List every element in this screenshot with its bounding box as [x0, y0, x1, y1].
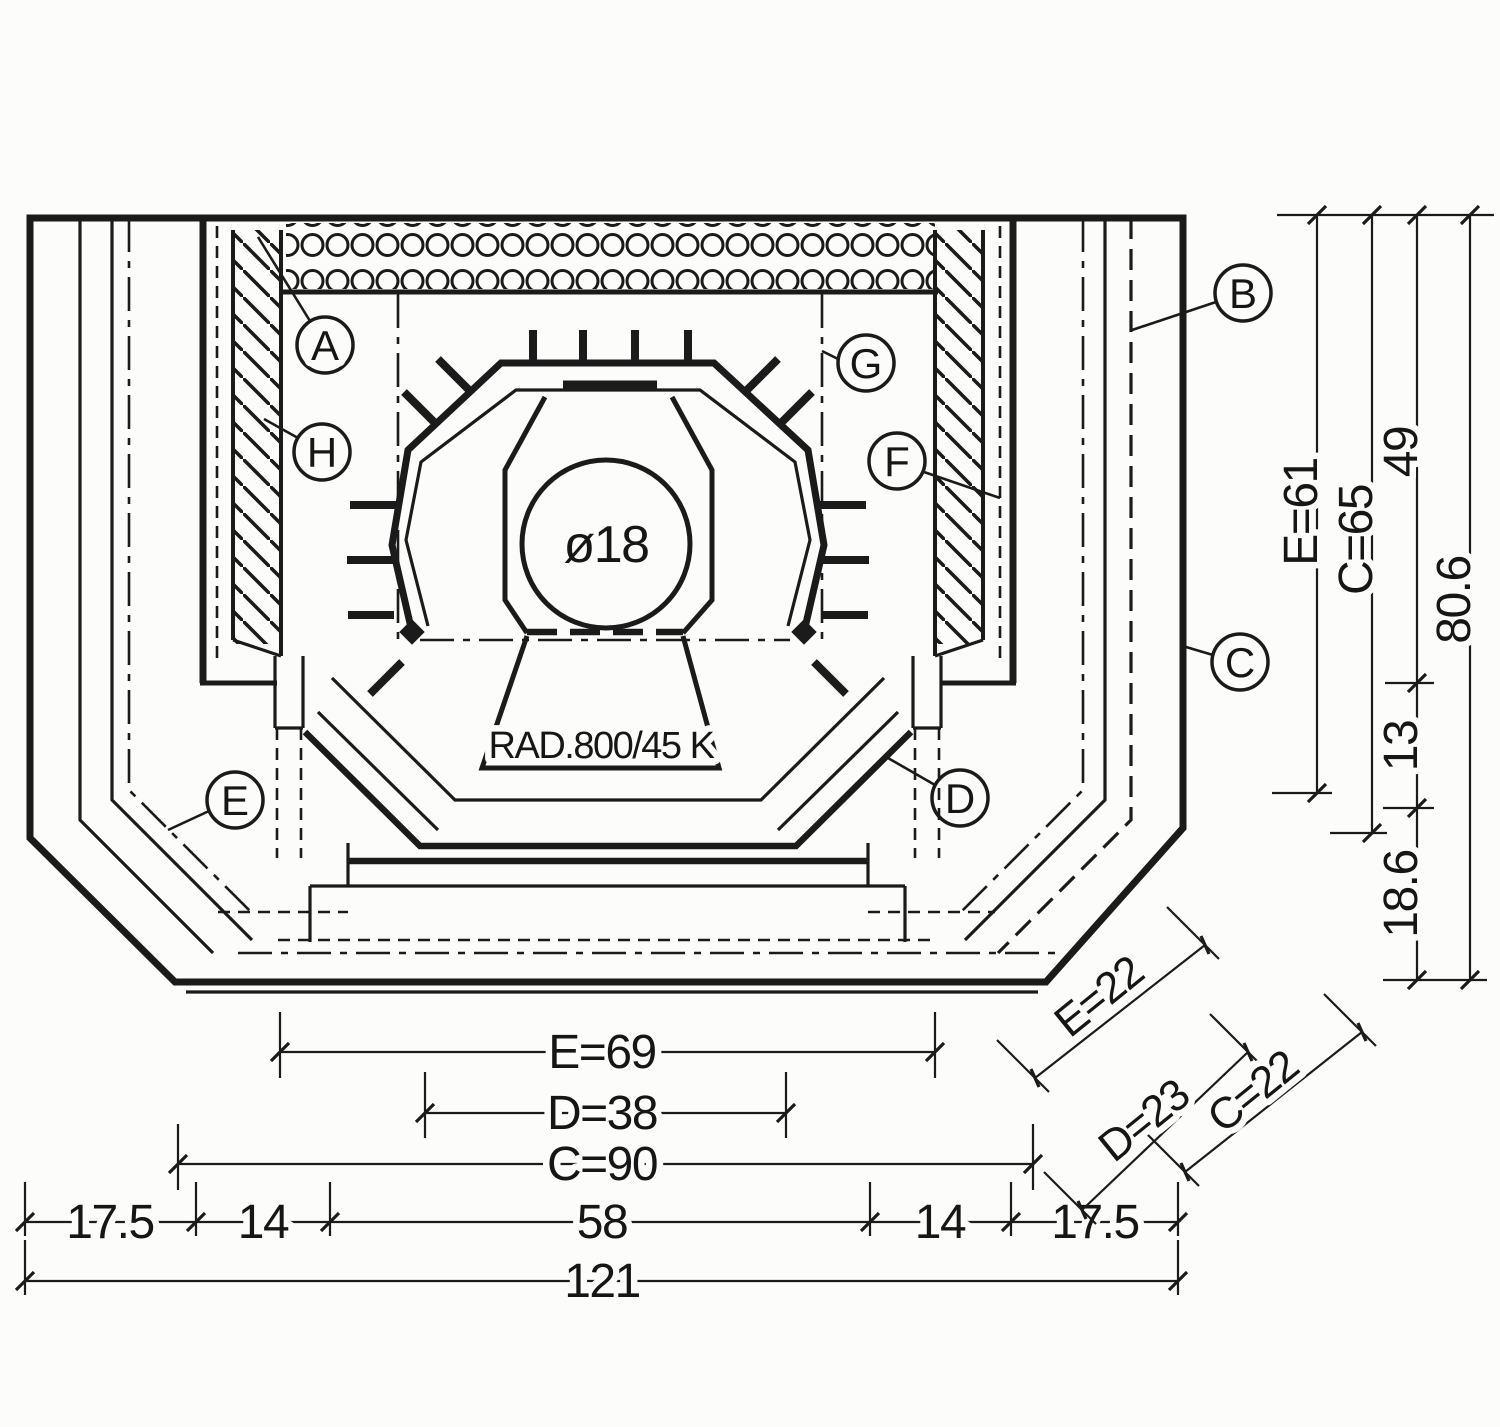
flue-diameter-label: ø18: [563, 516, 648, 574]
firebox-boundary: [398, 294, 822, 640]
callout-c-leader: [1186, 647, 1213, 655]
dim-seg-14-right: 14: [915, 1196, 966, 1249]
shell-layer-left-1: [80, 218, 213, 953]
radiator-spec-label: RAD.800/45 K: [489, 725, 715, 767]
dim-e61: E=61: [1275, 458, 1328, 565]
insert-foot-left: [275, 656, 303, 728]
dim-e69: E=69: [548, 1026, 655, 1079]
dim-d23: D=23: [1089, 1070, 1198, 1171]
dim-d38: D=38: [547, 1087, 657, 1140]
radiator-core: [305, 330, 911, 846]
dim-18-6: 18.6: [1375, 850, 1428, 937]
radiator-outer-contour: [392, 363, 824, 632]
dim-13: 13: [1375, 721, 1428, 771]
dim-80-6: 80.6: [1428, 556, 1481, 643]
insert-foot-right: [913, 656, 941, 728]
dimensions-right: E=61 C=65 49 13 18.6 80.6: [1272, 206, 1494, 989]
insulation-wave-band: [286, 223, 935, 289]
callout-b-label: B: [1229, 270, 1257, 317]
dim-49: 49: [1375, 427, 1428, 477]
drawing-sheet: A H G F B C D E ø18 RAD.800/45 K E=69 D=…: [0, 0, 1500, 1427]
dim-c65: C=65: [1330, 485, 1383, 595]
callout-a-label: A: [311, 322, 339, 369]
dim-seg-14-left: 14: [238, 1196, 289, 1249]
stove-technical-drawing: A H G F B C D E ø18 RAD.800/45 K E=69 D=…: [0, 0, 1500, 1427]
callout-b-leader: [1132, 302, 1216, 330]
dimensions-diagonal: E=22 D=23 C=22: [997, 907, 1376, 1224]
dim-seg-17-5-left: 17.5: [66, 1196, 153, 1249]
dim-total-121: 121: [564, 1255, 640, 1308]
callout-d-label: D: [945, 775, 975, 822]
firebrick-hatch-left: [233, 230, 281, 644]
firebrick-hatch-right: [935, 230, 983, 644]
callout-c-label: C: [1225, 639, 1255, 686]
firebox-centerlines: [398, 294, 822, 640]
radiator-inner-contour: [406, 390, 810, 626]
callout-e-label: E: [221, 777, 249, 824]
callout-e-leader: [168, 811, 209, 830]
dim-c90: C=90: [547, 1138, 657, 1191]
callout-g-leader: [822, 351, 838, 359]
callout-g-label: G: [850, 340, 883, 387]
callout-f-label: F: [884, 438, 910, 485]
callout-h-label: H: [307, 429, 337, 476]
dimensions-bottom: E=69 D=38 C=90 17.5 14 58 14 17.5 121: [16, 1012, 1187, 1308]
callout-d-leader: [888, 758, 935, 785]
dim-seg-58: 58: [577, 1196, 627, 1249]
firepot-walls: [505, 397, 712, 633]
cleanout-plug-right: [791, 619, 816, 644]
